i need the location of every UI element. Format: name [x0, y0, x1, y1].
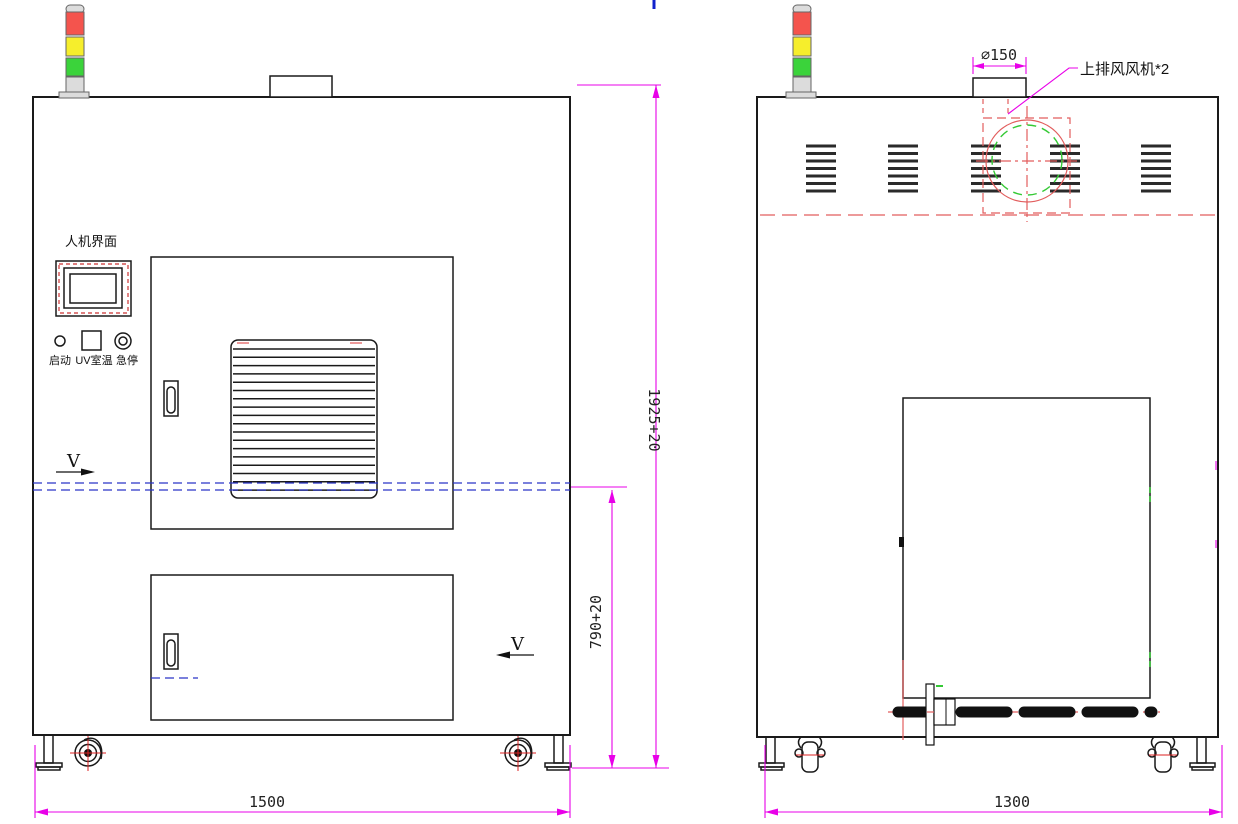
- tower-red-light: [66, 12, 84, 35]
- leveling-foot-front-left: [36, 735, 62, 770]
- tower-yellow-light: [793, 37, 811, 56]
- caster-wheel: [1155, 742, 1171, 772]
- dim-conveyor-height-value: 790+20: [587, 595, 605, 649]
- upper-door-outline: [151, 257, 453, 529]
- front-view: 人机界面 启动 UV室温 急停: [33, 0, 669, 818]
- dim-duct-diameter-value: ⌀150: [981, 46, 1017, 64]
- vent-grille-1: [806, 146, 836, 191]
- tower-yellow-light: [66, 37, 84, 56]
- upper-door: [151, 257, 453, 529]
- vent-grille-5: [1141, 146, 1171, 191]
- engineering-drawing: 人机界面 启动 UV室温 急停: [0, 0, 1238, 824]
- caster-side-left: [795, 737, 825, 772]
- exhaust-duct: [973, 78, 1026, 97]
- side-cabinet-outline: [757, 97, 1218, 737]
- tower-green-light: [793, 58, 811, 76]
- dim-conveyor-height: 790+20: [571, 487, 669, 768]
- dim-duct-diameter: ⌀150: [973, 46, 1026, 74]
- tower-green-light: [66, 58, 84, 76]
- front-top-duct: [270, 76, 332, 97]
- leveling-foot-side-right: [1190, 737, 1215, 770]
- dim-side-width-value: 1300: [994, 793, 1030, 811]
- section-label-right: V: [510, 634, 525, 655]
- signal-tower-side: [786, 5, 816, 98]
- caster-side-right: [1148, 737, 1178, 772]
- vent-grille-3: [971, 146, 1001, 191]
- caster-wheel: [802, 742, 818, 772]
- shaft-bearing-plate: [926, 684, 934, 745]
- lower-door: [151, 575, 453, 720]
- dim-overall-height: 1925+20: [577, 85, 663, 768]
- dim-overall-height-value: 1925+20: [645, 388, 663, 451]
- tower-pole: [66, 77, 84, 93]
- start-button-label: 启动: [49, 354, 71, 367]
- dim-front-width-value: 1500: [249, 793, 285, 811]
- tower-base-plate: [59, 92, 89, 98]
- estop-button-label: 急停: [116, 353, 138, 367]
- section-label-left: V: [66, 451, 81, 472]
- fan-callout-label: 上排风风机*2: [1080, 61, 1169, 78]
- caster-front-left: [70, 736, 106, 771]
- leveling-foot-side-left: [759, 737, 784, 770]
- vent-grille-2: [888, 146, 918, 191]
- tower-base-plate: [786, 92, 816, 98]
- side-view: ⌀150 上排风风机*2: [757, 5, 1222, 818]
- tower-pole: [793, 77, 811, 93]
- uv-temp-label: UV室温: [75, 353, 112, 367]
- shaft-coupling: [934, 699, 955, 725]
- hmi-title: 人机界面: [65, 234, 117, 249]
- lower-door-outline: [151, 575, 453, 720]
- signal-tower-front: [59, 5, 89, 98]
- vent-grille-4: [1050, 146, 1080, 191]
- leveling-foot-front-right: [545, 735, 571, 770]
- dim-front-width: 1500: [35, 745, 570, 818]
- tower-red-light: [793, 12, 811, 35]
- caster-front-right: [500, 736, 536, 771]
- chamber-hinge-tick: [899, 537, 904, 547]
